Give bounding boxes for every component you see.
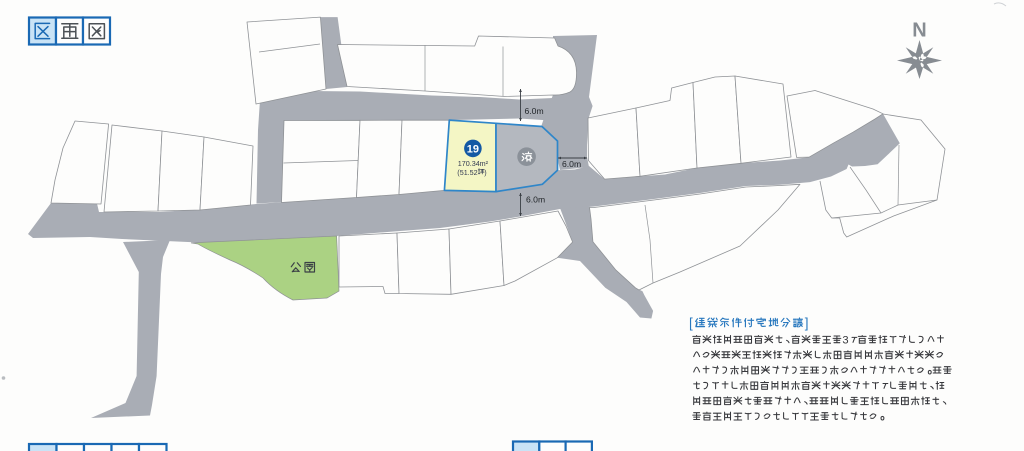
svg-text:): ) (484, 168, 486, 177)
svg-text:6.0m: 6.0m (525, 106, 544, 116)
svg-text:(51.52: (51.52 (457, 168, 477, 177)
svg-text:6.0m: 6.0m (526, 195, 545, 205)
svg-text:[: [ (689, 316, 693, 331)
svg-text:6.0m: 6.0m (562, 159, 581, 169)
svg-text:170.34m²: 170.34m² (458, 159, 489, 168)
svg-text:19: 19 (467, 143, 479, 155)
svg-text:N: N (912, 20, 926, 42)
svg-text:]: ] (805, 316, 809, 331)
svg-text:3: 3 (842, 334, 848, 346)
